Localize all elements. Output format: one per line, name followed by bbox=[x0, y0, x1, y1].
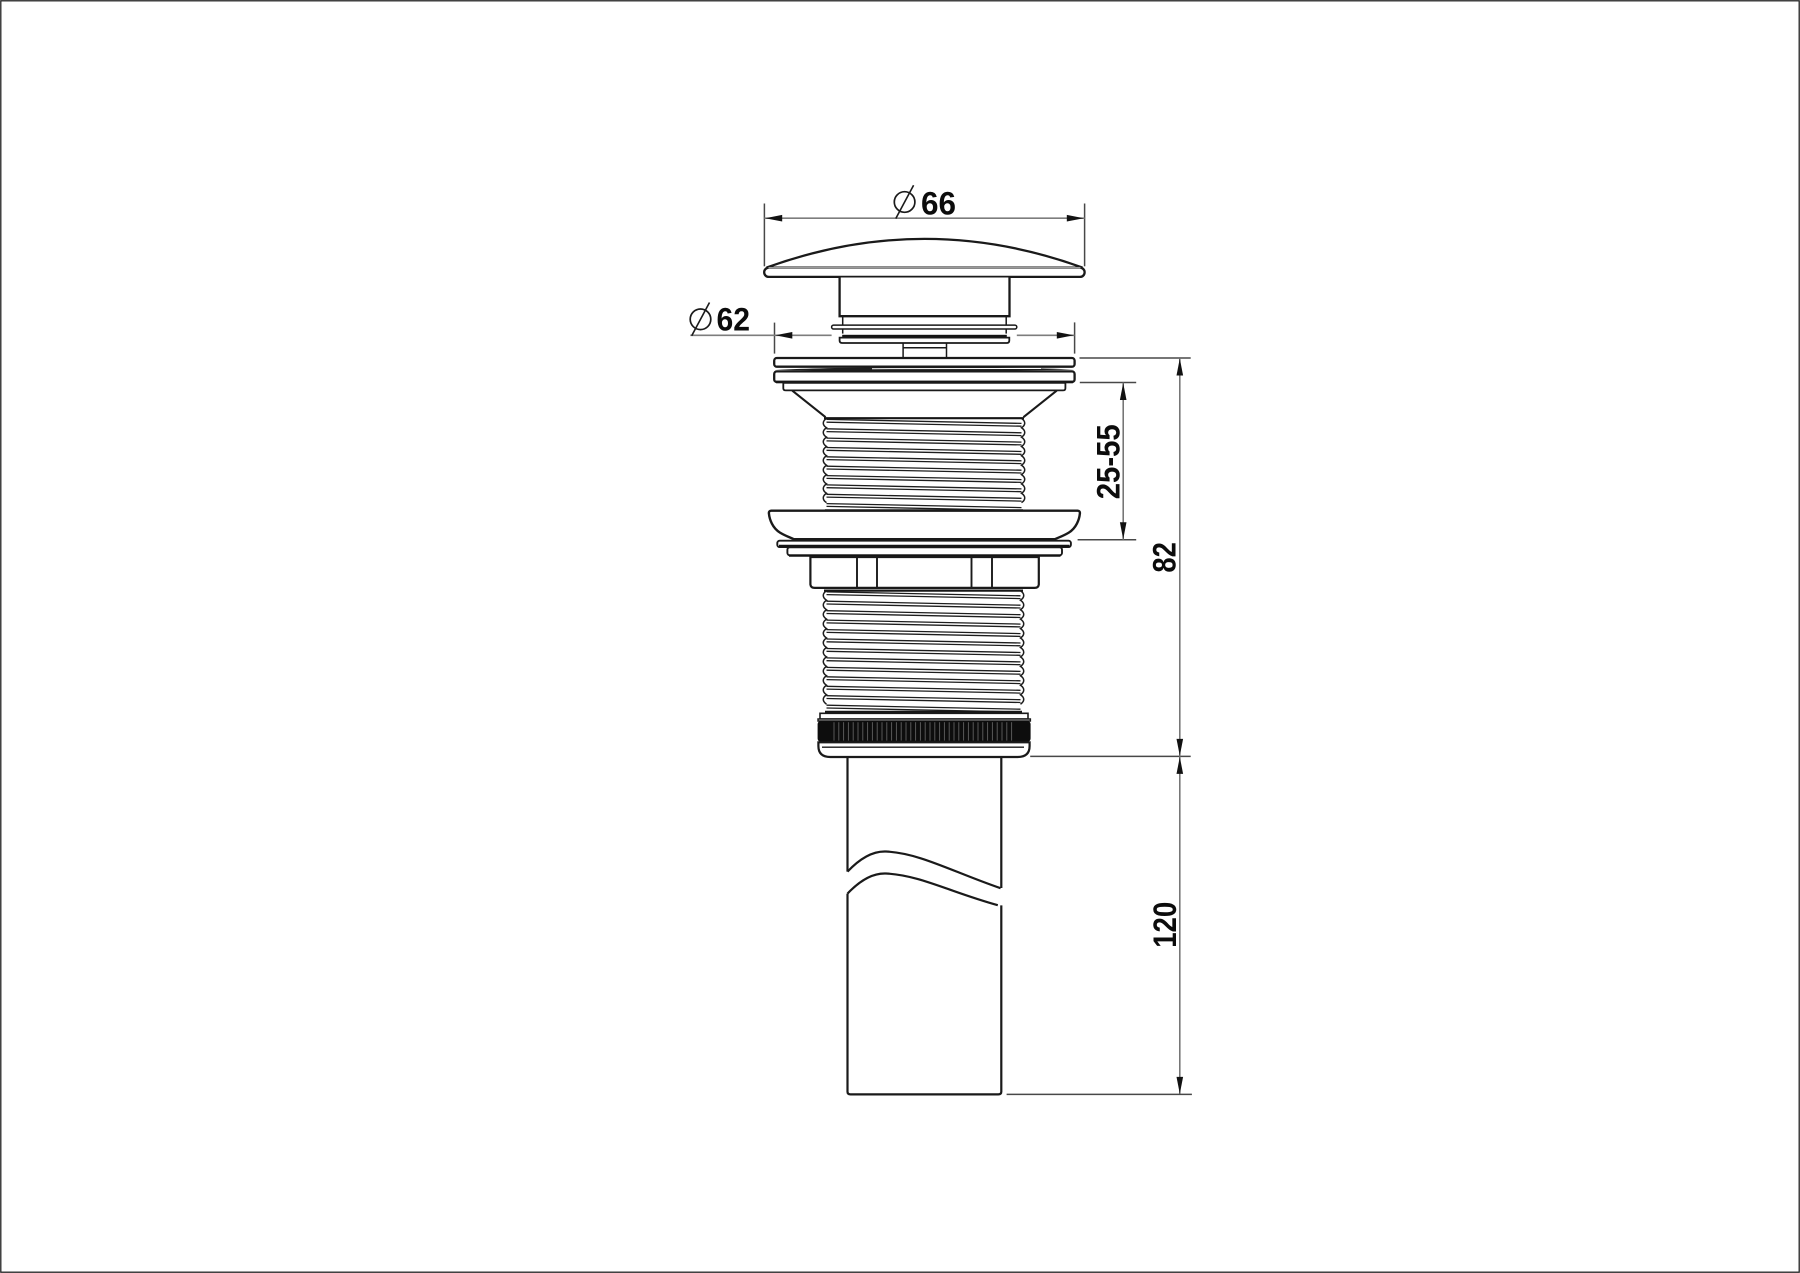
svg-text:82: 82 bbox=[1147, 542, 1183, 573]
svg-text:62: 62 bbox=[717, 302, 751, 338]
svg-text:66: 66 bbox=[921, 185, 956, 221]
svg-text:120: 120 bbox=[1147, 902, 1183, 948]
svg-text:25-55: 25-55 bbox=[1091, 424, 1127, 499]
